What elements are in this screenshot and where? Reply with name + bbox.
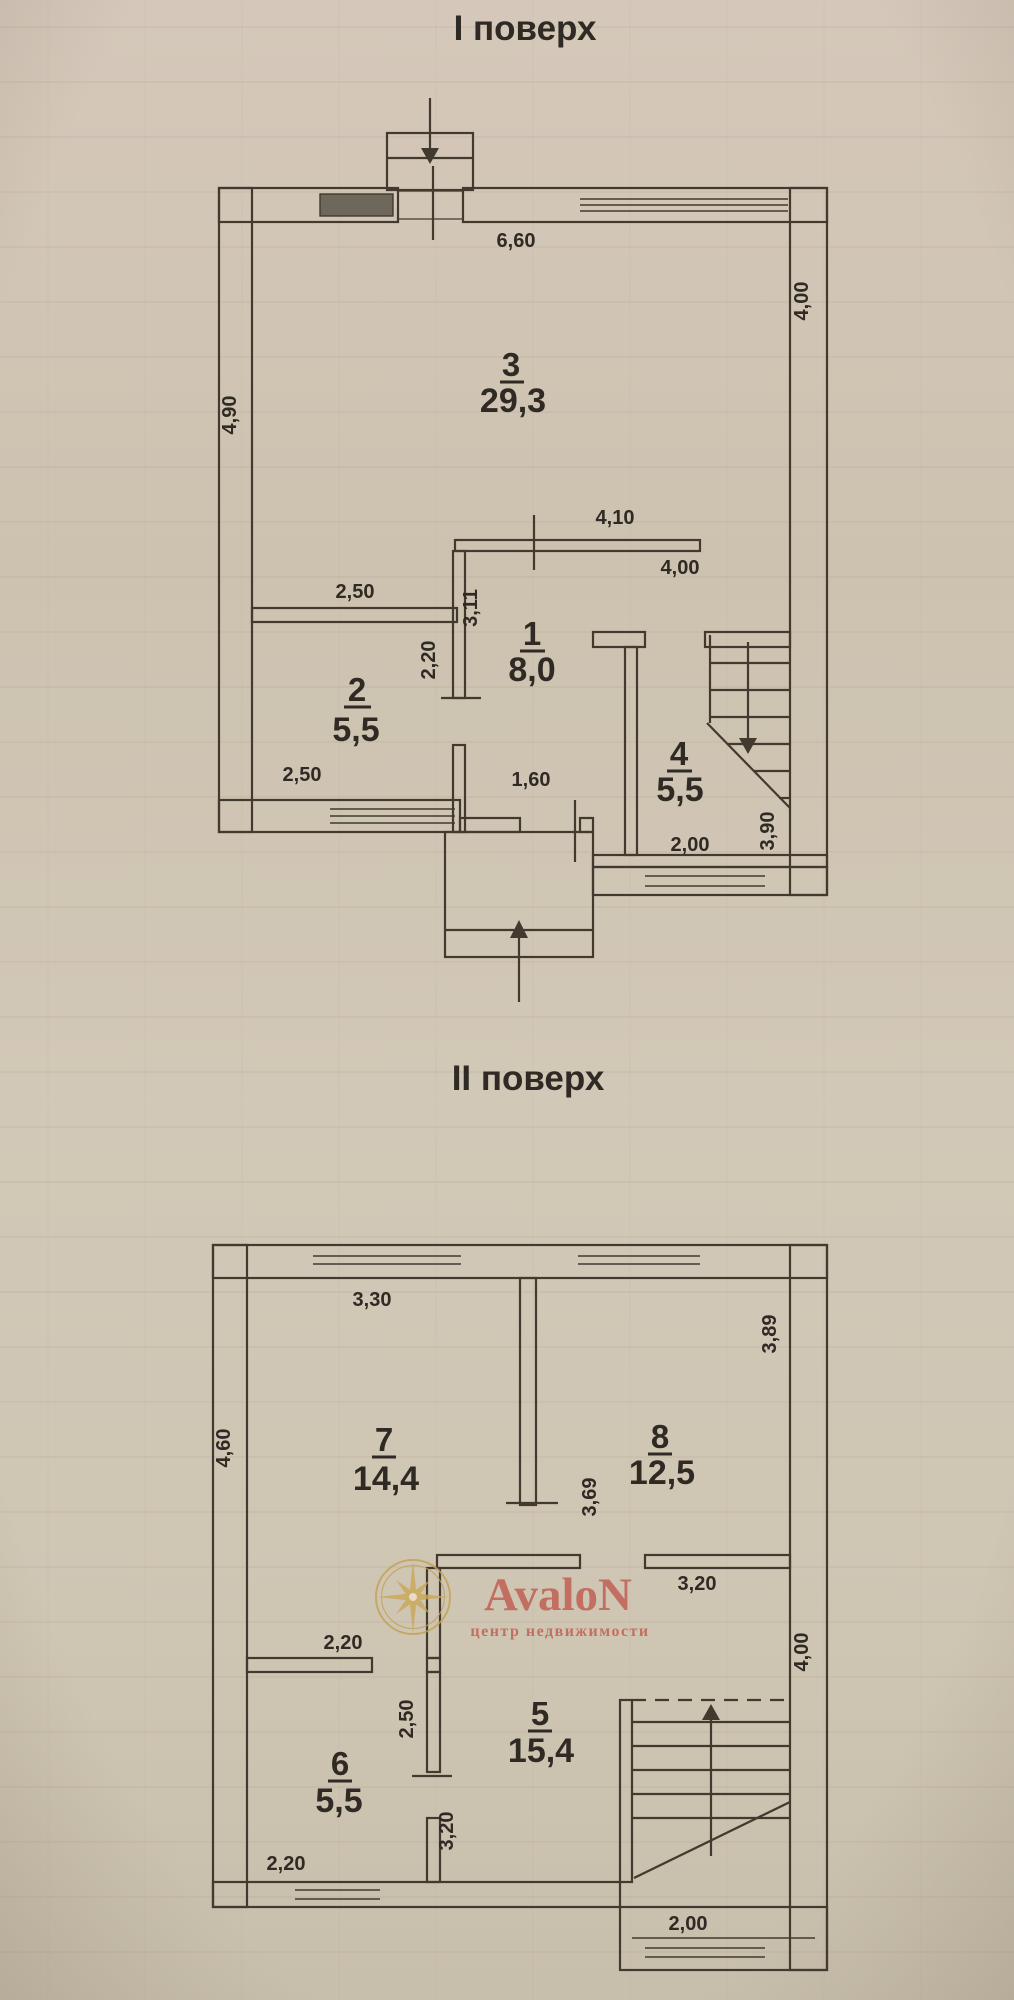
floor-plan-drawing: І поверх (0, 0, 1014, 2000)
scan-vignette (0, 0, 1014, 2000)
scanned-floor-plan-page: І поверх (0, 0, 1014, 2000)
